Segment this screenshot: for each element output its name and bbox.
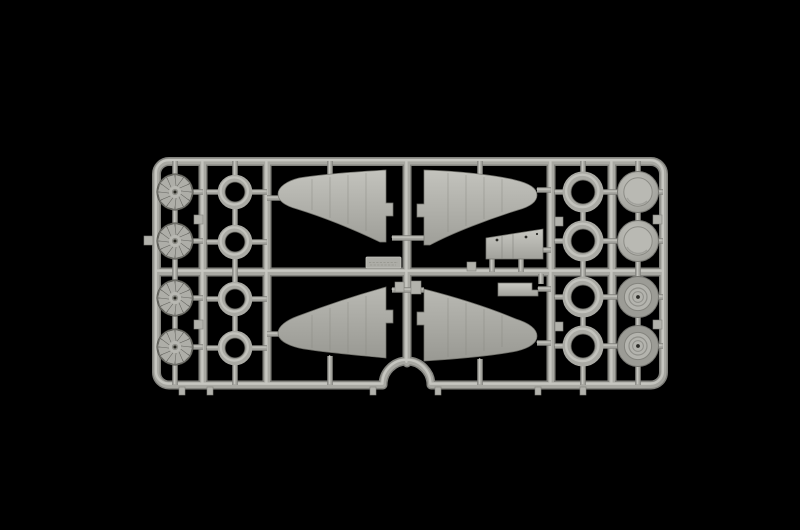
photo-vignette <box>0 0 800 530</box>
photo-canvas <box>0 0 800 530</box>
sprue-photo <box>0 0 800 530</box>
